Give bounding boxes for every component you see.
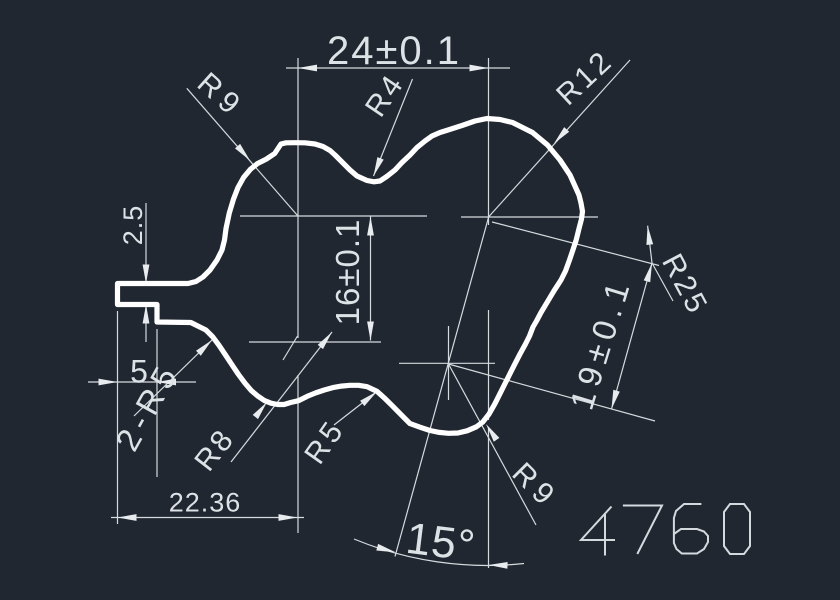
svg-text:24±0.1: 24±0.1 bbox=[327, 29, 461, 73]
svg-text:16±0.1: 16±0.1 bbox=[329, 219, 366, 326]
svg-text:22.36: 22.36 bbox=[169, 488, 242, 518]
svg-text:15°: 15° bbox=[403, 514, 478, 571]
svg-text:2.5: 2.5 bbox=[118, 205, 148, 246]
svg-text:5: 5 bbox=[130, 354, 148, 390]
